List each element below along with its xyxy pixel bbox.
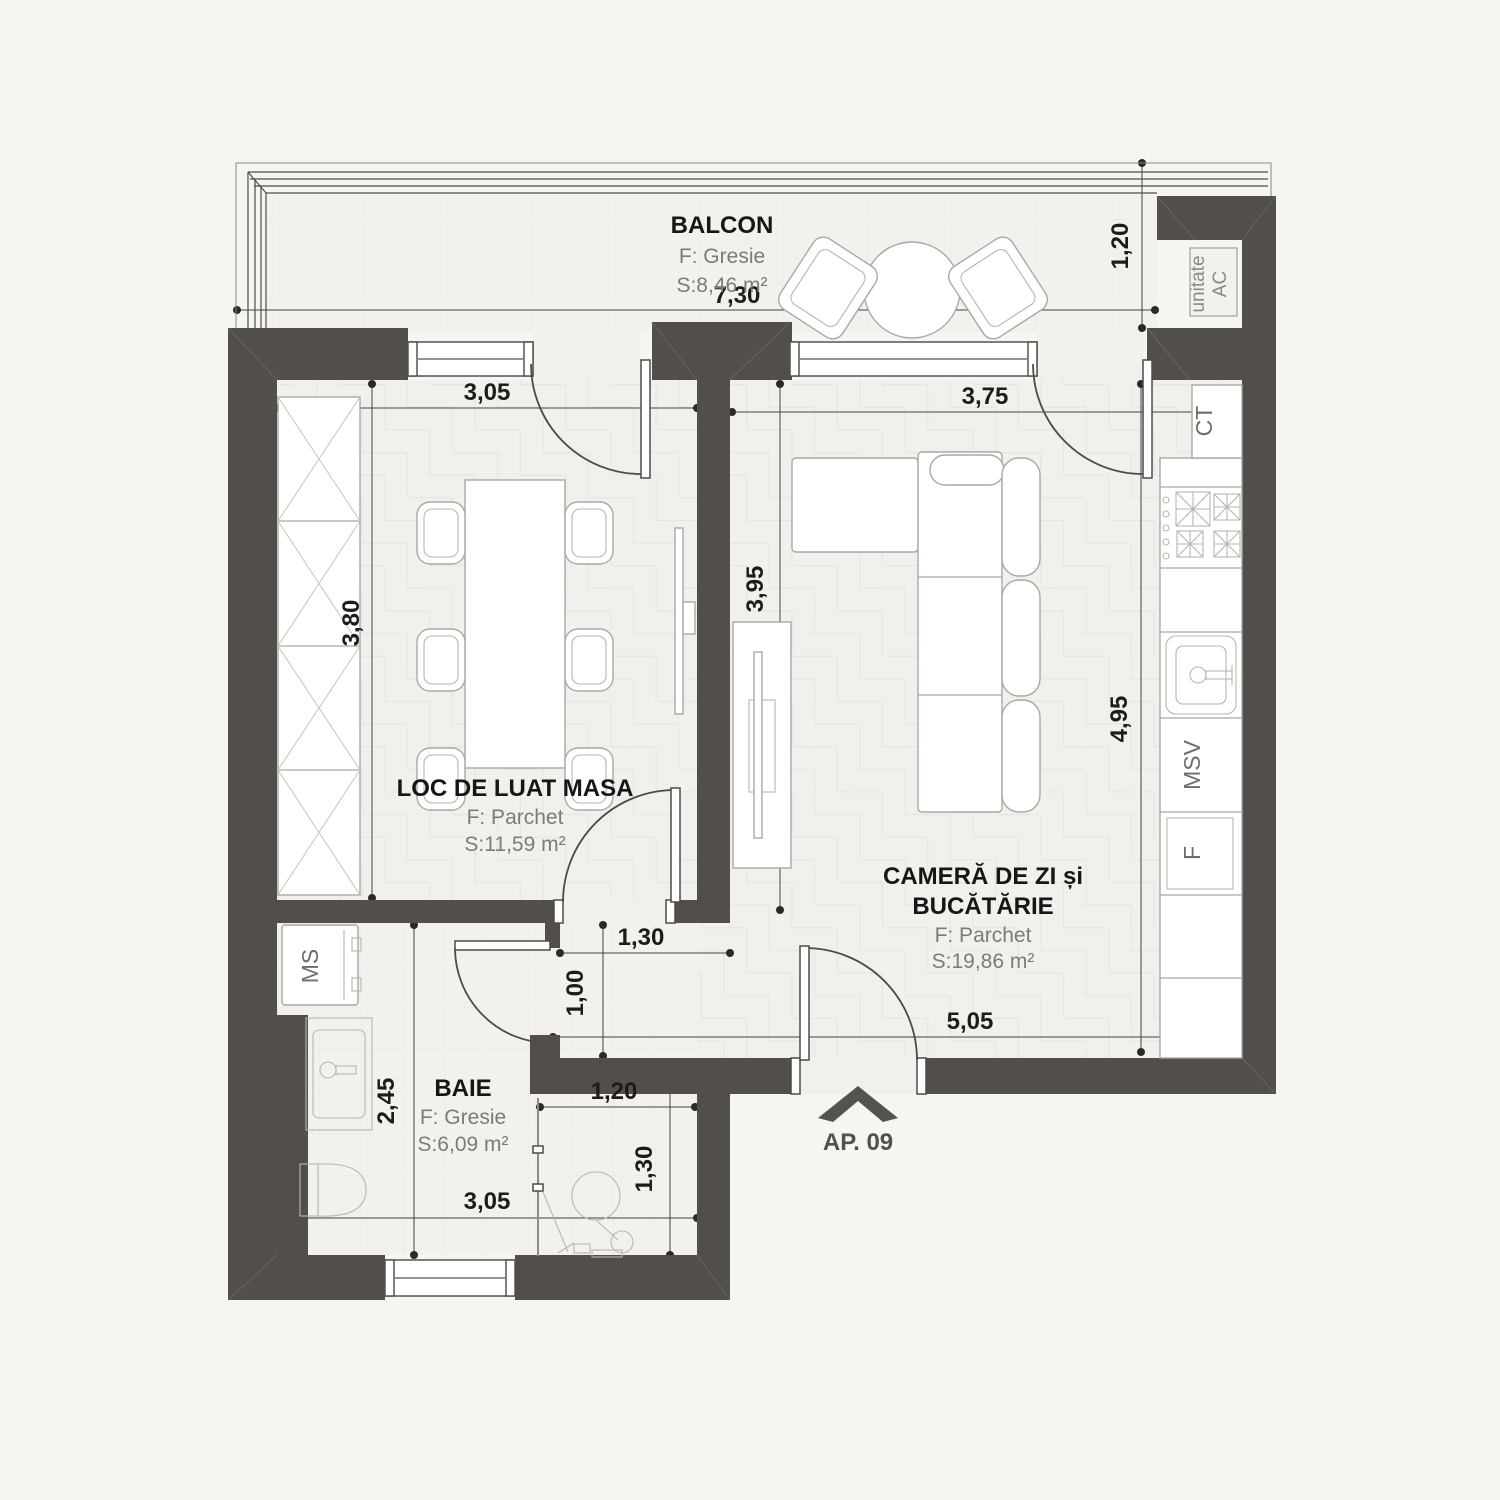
wall-bath-bottom-right <box>515 1255 730 1300</box>
floor-plan: unitateAC <box>0 0 1500 1500</box>
living-name-line1: CAMERĂ DE ZI și <box>883 862 1083 890</box>
dining-balcony-door-opening <box>533 332 641 380</box>
fridge-label: F <box>1179 846 1205 860</box>
chair <box>417 629 465 691</box>
wall-partition-dining-living <box>697 380 730 923</box>
dim-living-width: 3,75 <box>962 383 1009 410</box>
dim-balcony-depth: 1,20 <box>1107 223 1134 270</box>
ac-unit: unitateAC <box>1188 248 1237 316</box>
apartment-label: AP. 09 <box>823 1129 893 1156</box>
living-balcony-door-opening <box>1037 332 1143 380</box>
ac-unit-label-line1: unitate <box>1188 255 1209 312</box>
living-name-line2: BUCĂTĂRIE <box>912 892 1053 920</box>
wall-hall-step <box>530 1035 560 1058</box>
wall-bottom-living <box>923 1058 1276 1094</box>
tv-console <box>733 622 791 868</box>
dining-door-opening-floor <box>563 900 675 923</box>
chair <box>417 502 465 564</box>
dining-name: LOC DE LUAT MASA <box>397 775 634 802</box>
sofa-pillow-top <box>930 455 1004 485</box>
wall-dining-bottom-left <box>228 900 563 923</box>
dim-hall-width: 1,30 <box>618 924 665 951</box>
wall-top-center-pier <box>652 322 792 380</box>
dim-shower-depth: 1,30 <box>631 1146 658 1193</box>
balcony-floor-label: F: Gresie <box>679 245 765 268</box>
sofa-back-pillow <box>1002 458 1040 576</box>
dishwasher-label: MSV <box>1179 739 1205 790</box>
dim-bath-width: 3,05 <box>464 1188 511 1215</box>
wall-bottom-hall <box>530 1058 798 1094</box>
kitchen-counter: CT MSV F <box>1160 385 1242 1058</box>
dim-living-bottom-width: 5,05 <box>947 1008 994 1035</box>
dim-bath-depth: 2,45 <box>373 1078 400 1125</box>
living-floor-label: F: Parchet <box>935 924 1032 947</box>
dim-hall-depth: 1,00 <box>562 970 589 1017</box>
balcony-name: BALCON <box>671 212 774 239</box>
dim-living-depth-right: 4,95 <box>1106 696 1133 743</box>
sofa-back-pillow <box>1002 700 1040 812</box>
dining-area-label: S:11,59 m² <box>464 833 565 856</box>
balcony-furniture <box>774 233 1052 344</box>
bath-floor-label: F: Gresie <box>420 1106 506 1129</box>
dim-dining-width: 3,05 <box>464 379 511 406</box>
bath-name: BAIE <box>434 1075 491 1102</box>
floor-plan-drawing: unitateAC <box>0 0 1500 1500</box>
dim-shower-width: 1,20 <box>591 1078 638 1105</box>
sofa-back-pillow <box>1002 580 1040 696</box>
bath-door-opening-floor <box>545 948 560 1036</box>
dining-window <box>408 342 533 376</box>
living-area-label: S:19,86 m² <box>932 950 1035 973</box>
dim-dining-depth: 3,80 <box>338 600 365 647</box>
dining-floor-label: F: Parchet <box>467 806 564 829</box>
washing-machine-label: MS <box>297 949 323 984</box>
bath-area-label: S:6,09 m² <box>417 1133 508 1156</box>
chair <box>565 502 613 564</box>
ac-unit-label-line2: AC <box>1210 271 1231 297</box>
wall-dining-bottom-right <box>675 900 730 923</box>
wall-left <box>228 328 277 1300</box>
wall-right <box>1242 240 1276 1094</box>
chair <box>565 629 613 691</box>
balcony-area-label: S:8,46 m² <box>676 274 767 297</box>
balcony-table <box>864 242 960 338</box>
boiler-label: CT <box>1191 406 1217 437</box>
washing-machine-icon: MS <box>282 925 361 1005</box>
dim-living-depth-left: 3,95 <box>742 566 769 613</box>
wall-bath-bottom-left <box>228 1255 385 1300</box>
dining-table <box>465 480 565 768</box>
living-window <box>790 342 1037 376</box>
wall-balcony-right <box>1157 196 1276 240</box>
bath-window <box>385 1260 515 1296</box>
